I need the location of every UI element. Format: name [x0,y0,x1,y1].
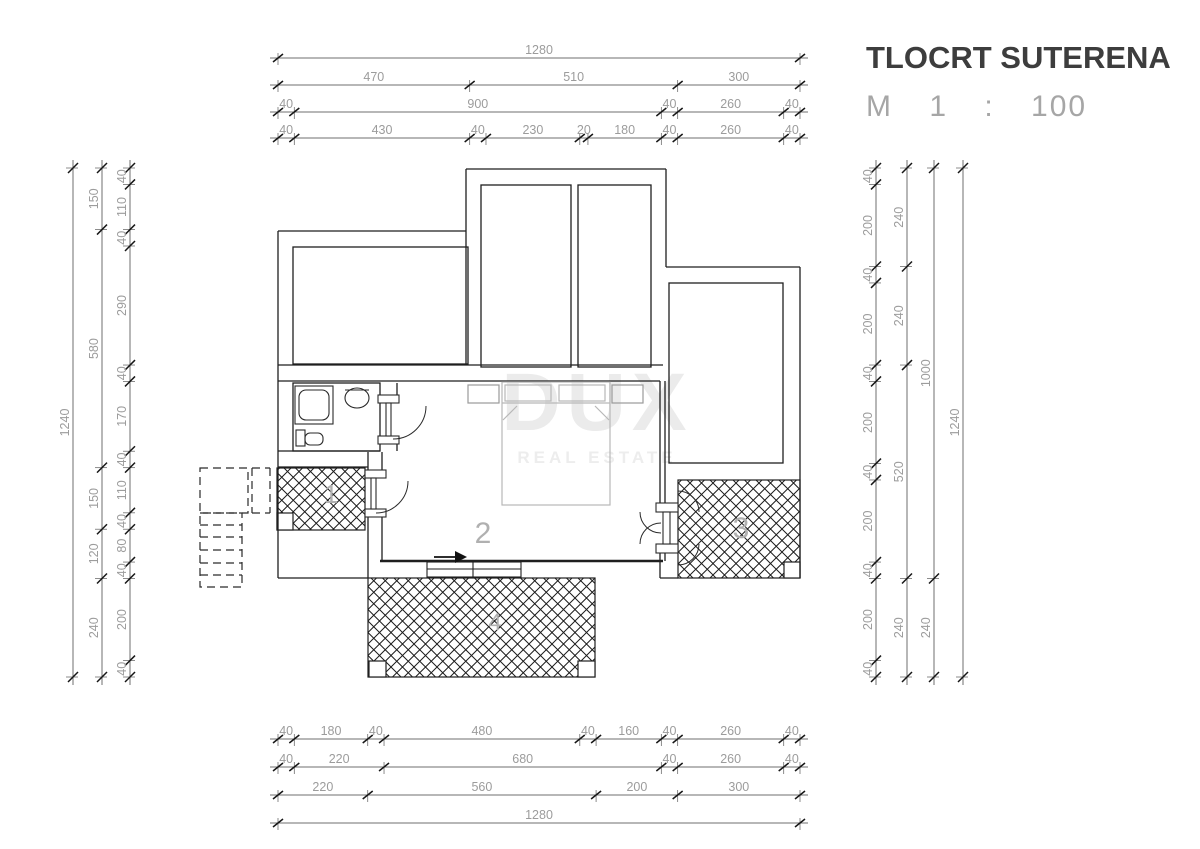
drawing-title: TLOCRT SUTERENA [866,40,1171,76]
bathroom-door [378,395,426,444]
dimension-label: 430 [372,123,393,137]
dimension-label: 260 [720,97,741,111]
dimension-label: 1240 [948,409,962,437]
dimension-label: 40 [115,514,129,528]
bath-band [278,451,380,467]
dimension-label: 170 [115,406,129,427]
dimension-label: 230 [522,123,543,137]
dimension-label: 1000 [919,359,933,387]
dimension-label: 40 [115,662,129,676]
dimension-row: 4018040480401604026040 [270,724,808,746]
drawing-sheet: DUX REAL ESTATE TLOCRT SUTERENA M 1 : 10… [0,0,1200,849]
dimension-column: 1240 [948,160,968,685]
bedroom-furniture [468,382,643,505]
dimension-lines: 1280470510300409004026040404304023020180… [58,43,968,830]
dimension-label: 40 [861,366,875,380]
room-upper-right [669,283,783,463]
dimension-label: 150 [87,188,101,209]
dimension-label: 470 [363,70,384,84]
dimension-label: 120 [87,543,101,564]
dimension-label: 200 [861,609,875,630]
bed [502,382,610,505]
dimension-label: 220 [329,752,350,766]
dimension-column: 4011040290401704011040804020040 [115,160,135,685]
dimension-label: 40 [279,752,293,766]
dimension-label: 110 [115,480,129,500]
dimension-row: 1280 [270,43,808,65]
nightstand-left [468,385,499,403]
dimension-label: 40 [115,366,129,380]
dimension-label: 240 [87,617,101,638]
dimension-label: 240 [892,617,906,638]
terrace-1-pier [277,513,293,530]
dimension-label: 240 [892,207,906,228]
terrace-4-pier-left [369,661,386,677]
dimension-row: 4043040230201804026040 [270,123,808,145]
dimension-label: 290 [115,295,129,316]
dimension-row: 409004026040 [270,97,808,119]
dimension-label: 900 [467,97,488,111]
toilet [296,430,323,446]
dimension-label: 1280 [525,808,553,822]
dimension-label: 200 [861,314,875,335]
room-label-2: 2 [475,517,492,550]
dimension-label: 40 [115,231,129,245]
dimension-label: 40 [785,752,799,766]
dimension-label: 200 [861,215,875,236]
dimension-label: 40 [115,452,129,466]
dimension-label: 560 [471,780,492,794]
dimension-label: 260 [720,724,741,738]
dimension-label: 40 [663,752,677,766]
room-upper-left [293,247,468,364]
dimension-column: 1240 [58,160,78,685]
dimension-label: 150 [87,488,101,509]
dimension-label: 300 [728,70,749,84]
dimension-label: 40 [663,97,677,111]
dimension-label: 40 [663,724,677,738]
room-label-4: 4 [488,609,501,636]
dimension-label: 1240 [58,409,72,437]
dimension-row: 220560200300 [270,780,808,802]
dimension-label: 480 [471,724,492,738]
dimension-label: 40 [115,563,129,577]
dimension-label: 110 [115,197,129,217]
terrace-3-pier [784,562,800,578]
dimension-label: 200 [626,780,647,794]
dimension-label: 40 [785,123,799,137]
dimension-label: 40 [861,268,875,282]
dimension-label: 40 [861,662,875,676]
dimension-label: 40 [279,123,293,137]
room-label-1: 1 [324,479,338,509]
dimension-label: 40 [279,97,293,111]
dimension-row: 470510300 [270,70,808,92]
terrace-hatch-areas [277,468,800,677]
garage-bay-left [481,185,571,367]
dashed-exterior-stairs [200,468,270,587]
dimension-label: 520 [892,461,906,482]
dimension-label: 40 [581,724,595,738]
dimension-label: 220 [312,780,333,794]
dimension-label: 40 [785,724,799,738]
dimension-label: 40 [369,724,383,738]
dimension-column: 240240520240 [892,160,912,685]
dimension-label: 510 [563,70,584,84]
entry-door [365,470,408,517]
nightstand-right [612,385,643,403]
dimension-label: 40 [279,724,293,738]
doors [365,395,699,565]
dimension-label: 20 [577,123,591,137]
dimension-label: 40 [861,563,875,577]
dimension-label: 260 [720,752,741,766]
title-block: TLOCRT SUTERENA M 1 : 100 [866,40,1171,124]
dimension-column: 1000240 [919,160,939,685]
floor-plan-drawing: 1280470510300409004026040404304023020180… [0,0,1200,849]
bathroom-fixtures [295,386,369,446]
drawing-scale-label: M 1 : 100 [866,90,1171,124]
room-label-3: 3 [733,512,750,545]
terrace-4-hatch [368,578,595,677]
terrace-4-pier-right [578,661,595,677]
dimension-label: 40 [861,465,875,479]
bathtub [295,386,333,424]
dimension-label: 160 [618,724,639,738]
dimension-label: 240 [919,617,933,638]
dimension-row: 1280 [270,808,808,830]
dimension-column: 402004020040200402004020040 [861,160,881,685]
dimension-row: 402206804026040 [270,752,808,774]
garage-outline [466,169,666,365]
sink [345,388,369,408]
dimension-label: 180 [321,724,342,738]
entry-steps [427,562,521,577]
dimension-label: 80 [115,539,129,553]
dimension-label: 40 [663,123,677,137]
dimension-label: 40 [471,123,485,137]
dimension-label: 200 [861,412,875,433]
dimension-label: 200 [861,511,875,532]
dimension-column: 150580150120240 [87,160,107,685]
dimension-label: 240 [892,305,906,326]
garage-bay-right [578,185,651,367]
dimension-label: 40 [785,97,799,111]
dimension-label: 40 [115,169,129,183]
dimension-label: 180 [614,123,635,137]
dimension-label: 40 [861,169,875,183]
dimension-label: 260 [720,123,741,137]
dimension-label: 680 [512,752,533,766]
dimension-label: 1280 [525,43,553,57]
dimension-label: 580 [87,338,101,359]
dimension-label: 200 [115,609,129,630]
dimension-label: 300 [728,780,749,794]
